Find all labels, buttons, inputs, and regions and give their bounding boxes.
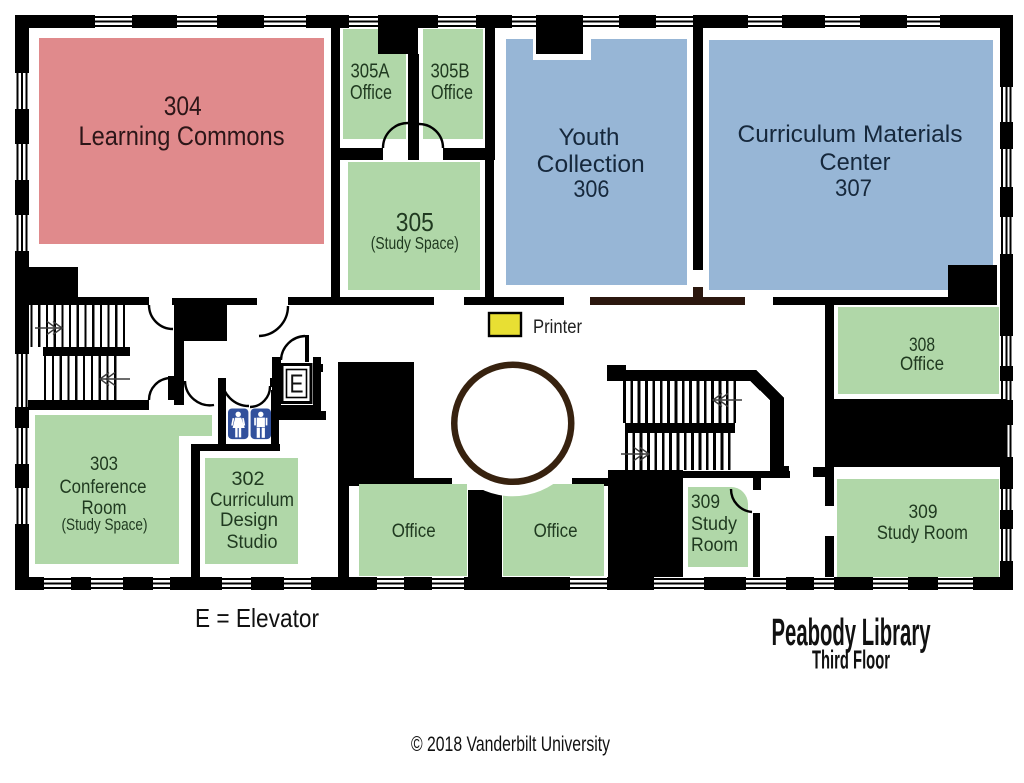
svg-text:305A: 305A [351, 61, 391, 83]
svg-text:308: 308 [909, 335, 935, 356]
svg-text:Curriculum Materials: Curriculum Materials [738, 121, 963, 148]
svg-text:Youth: Youth [559, 124, 620, 151]
svg-text:(Study Space): (Study Space) [371, 233, 459, 253]
svg-text:Office: Office [392, 520, 436, 542]
svg-text:303: 303 [90, 454, 118, 475]
svg-text:Study Room: Study Room [877, 522, 968, 544]
svg-text:Office: Office [900, 354, 944, 375]
svg-text:Learning Commons: Learning Commons [79, 121, 285, 151]
svg-text:309: 309 [909, 502, 938, 523]
svg-text:307: 307 [835, 175, 872, 202]
svg-text:Room: Room [691, 535, 738, 556]
svg-text:© 2018 Vanderbilt University: © 2018 Vanderbilt University [411, 733, 610, 756]
svg-text:Center: Center [820, 149, 891, 176]
svg-text:Printer: Printer [533, 317, 583, 338]
svg-text:(Study Space): (Study Space) [62, 516, 148, 534]
svg-text:E: E [290, 369, 304, 399]
svg-text:Design: Design [220, 510, 278, 531]
svg-text:302: 302 [232, 469, 265, 490]
svg-text:Office: Office [534, 520, 578, 542]
svg-text:E = Elevator: E = Elevator [195, 603, 319, 633]
svg-text:Conference: Conference [60, 477, 147, 498]
svg-text:Study: Study [691, 514, 737, 535]
svg-text:306: 306 [573, 176, 609, 203]
svg-text:Curriculum: Curriculum [210, 490, 294, 511]
svg-text:Third Floor: Third Floor [812, 645, 890, 675]
svg-text:309: 309 [691, 492, 720, 513]
svg-text:Collection: Collection [537, 151, 645, 178]
svg-text:Studio: Studio [227, 532, 278, 553]
svg-text:305B: 305B [431, 61, 470, 83]
svg-text:304: 304 [164, 91, 202, 121]
svg-text:Office: Office [431, 82, 473, 104]
svg-text:Office: Office [350, 82, 392, 104]
